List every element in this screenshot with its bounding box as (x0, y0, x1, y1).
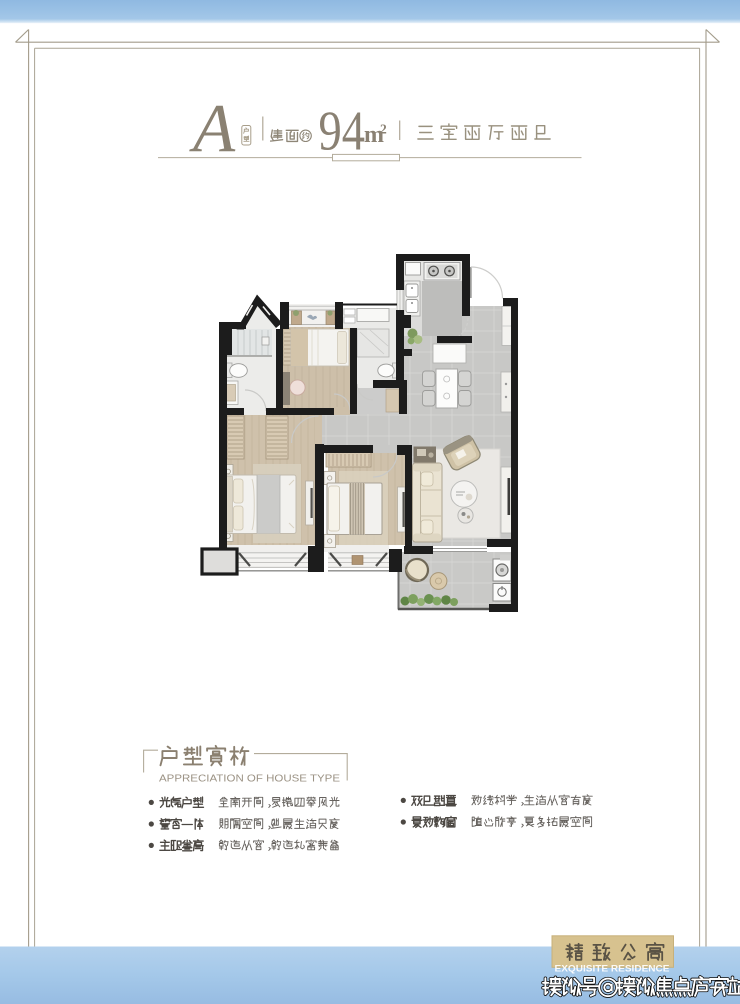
svg-text:2: 2 (380, 122, 387, 137)
svg-text:A: A (189, 90, 236, 166)
svg-text:94: 94 (319, 101, 366, 163)
svg-text:EXQUISITE RESIDENCE: EXQUISITE RESIDENCE (555, 964, 670, 974)
svg-text:APPRECIATION OF HOUSE TYPE: APPRECIATION OF HOUSE TYPE (159, 774, 341, 785)
